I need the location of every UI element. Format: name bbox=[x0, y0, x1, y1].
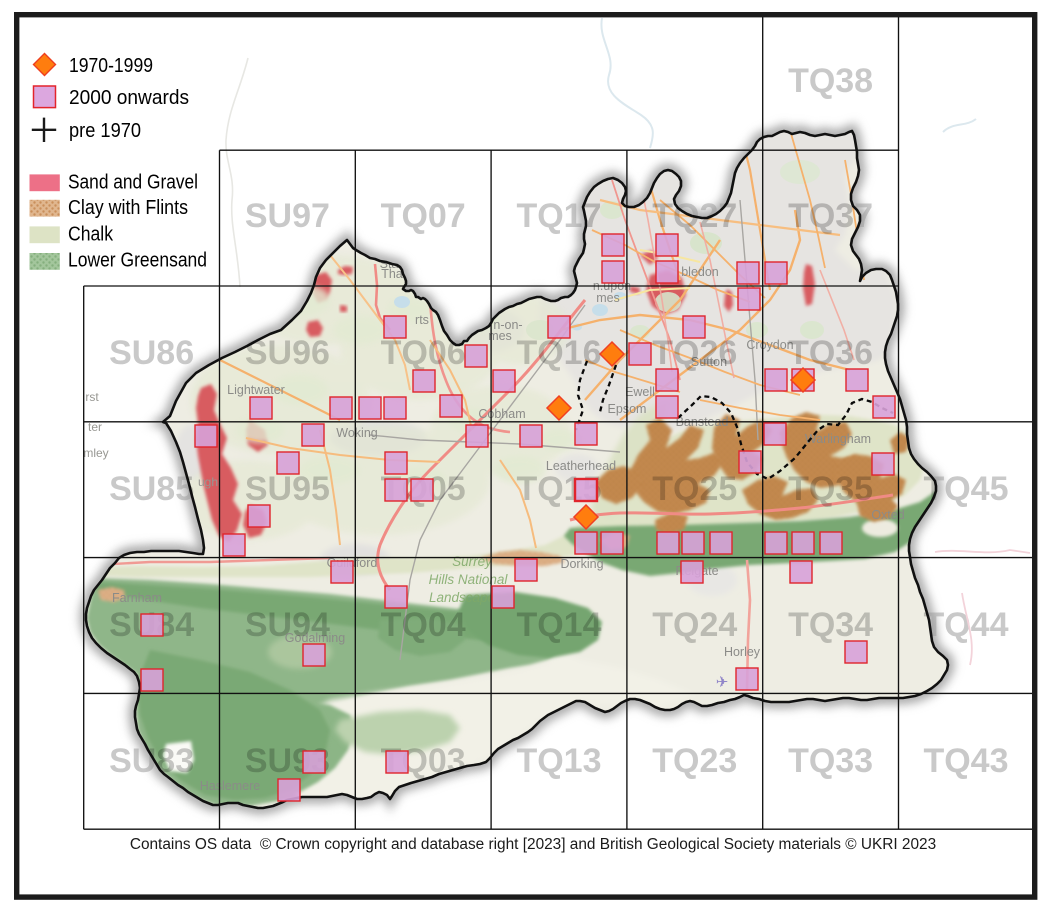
svg-text:SU97: SU97 bbox=[245, 197, 330, 235]
svg-text:Croydon: Croydon bbox=[746, 338, 793, 352]
svg-text:1970-1999: 1970-1999 bbox=[69, 55, 153, 77]
svg-text:TQ38: TQ38 bbox=[788, 62, 873, 100]
svg-text:Landscape: Landscape bbox=[429, 590, 495, 605]
svg-text:Farnham: Farnham bbox=[112, 591, 162, 605]
svg-text:Hills National: Hills National bbox=[429, 572, 509, 587]
svg-text:TQ07: TQ07 bbox=[381, 197, 466, 235]
svg-text:TQ13: TQ13 bbox=[516, 742, 601, 780]
svg-text:TQ33: TQ33 bbox=[788, 742, 873, 780]
svg-text:SU86: SU86 bbox=[109, 334, 194, 372]
svg-text:SU95: SU95 bbox=[245, 470, 330, 508]
svg-text:2000 onwards: 2000 onwards bbox=[69, 87, 189, 109]
svg-text:Sand and Gravel: Sand and Gravel bbox=[68, 172, 198, 194]
svg-text:TQ14: TQ14 bbox=[516, 606, 601, 644]
svg-text:mes: mes bbox=[596, 291, 620, 305]
svg-text:Cobham: Cobham bbox=[478, 407, 525, 421]
svg-text:Woking: Woking bbox=[336, 426, 378, 440]
svg-text:TQ43: TQ43 bbox=[923, 742, 1008, 780]
svg-text:Contains OS data © Crown copy: Contains OS data © Crown copyright and d… bbox=[130, 836, 936, 853]
svg-text:rts: rts bbox=[415, 313, 429, 327]
svg-text:TQ04: TQ04 bbox=[381, 606, 466, 644]
svg-text:Ewell: Ewell bbox=[625, 385, 655, 399]
svg-text:TQ25: TQ25 bbox=[652, 470, 737, 508]
svg-text:Lightwater: Lightwater bbox=[227, 383, 285, 397]
svg-text:ugh: ugh bbox=[198, 475, 218, 489]
svg-text:Haslemere: Haslemere bbox=[200, 779, 260, 793]
svg-text:Chalk: Chalk bbox=[68, 224, 114, 246]
svg-text:mley: mley bbox=[83, 446, 108, 460]
svg-text:Horley: Horley bbox=[724, 645, 761, 659]
svg-text:rst: rst bbox=[85, 390, 99, 404]
svg-text:Tha: Tha bbox=[381, 267, 403, 281]
svg-text:Clay with Flints: Clay with Flints bbox=[68, 197, 188, 219]
svg-text:TQ23: TQ23 bbox=[652, 742, 737, 780]
svg-text:TQ26: TQ26 bbox=[652, 334, 737, 372]
svg-text:TQ35: TQ35 bbox=[788, 470, 873, 508]
svg-text:Dorking: Dorking bbox=[560, 557, 603, 571]
svg-text:TQ24: TQ24 bbox=[652, 606, 737, 644]
svg-text:SU94: SU94 bbox=[245, 606, 330, 644]
svg-text:pre 1970: pre 1970 bbox=[69, 120, 141, 142]
svg-text:bledon: bledon bbox=[681, 265, 719, 279]
svg-text:Surrey: Surrey bbox=[452, 554, 493, 569]
svg-text:TQ16: TQ16 bbox=[516, 334, 601, 372]
svg-text:TQ34: TQ34 bbox=[788, 606, 873, 644]
svg-text:TQ36: TQ36 bbox=[788, 334, 873, 372]
svg-text:Oxted: Oxted bbox=[871, 508, 904, 522]
svg-text:✈: ✈ bbox=[716, 674, 729, 691]
svg-text:Lower Greensand: Lower Greensand bbox=[68, 250, 207, 272]
